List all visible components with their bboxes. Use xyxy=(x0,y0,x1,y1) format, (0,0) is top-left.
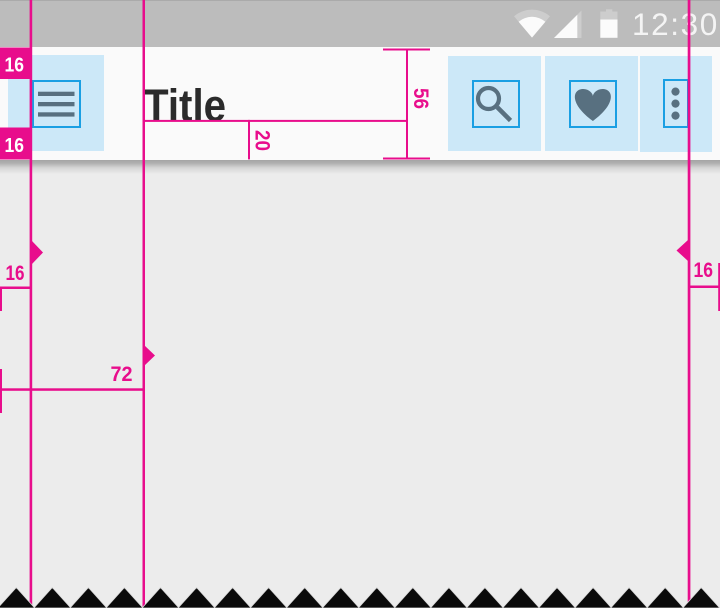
svg-text:16: 16 xyxy=(5,135,25,157)
svg-text:16: 16 xyxy=(5,55,25,77)
svg-text:16: 16 xyxy=(6,262,25,285)
svg-text:20: 20 xyxy=(251,130,274,151)
svg-text:56: 56 xyxy=(409,88,432,109)
svg-text:72: 72 xyxy=(111,363,133,386)
svg-text:16: 16 xyxy=(694,259,714,282)
